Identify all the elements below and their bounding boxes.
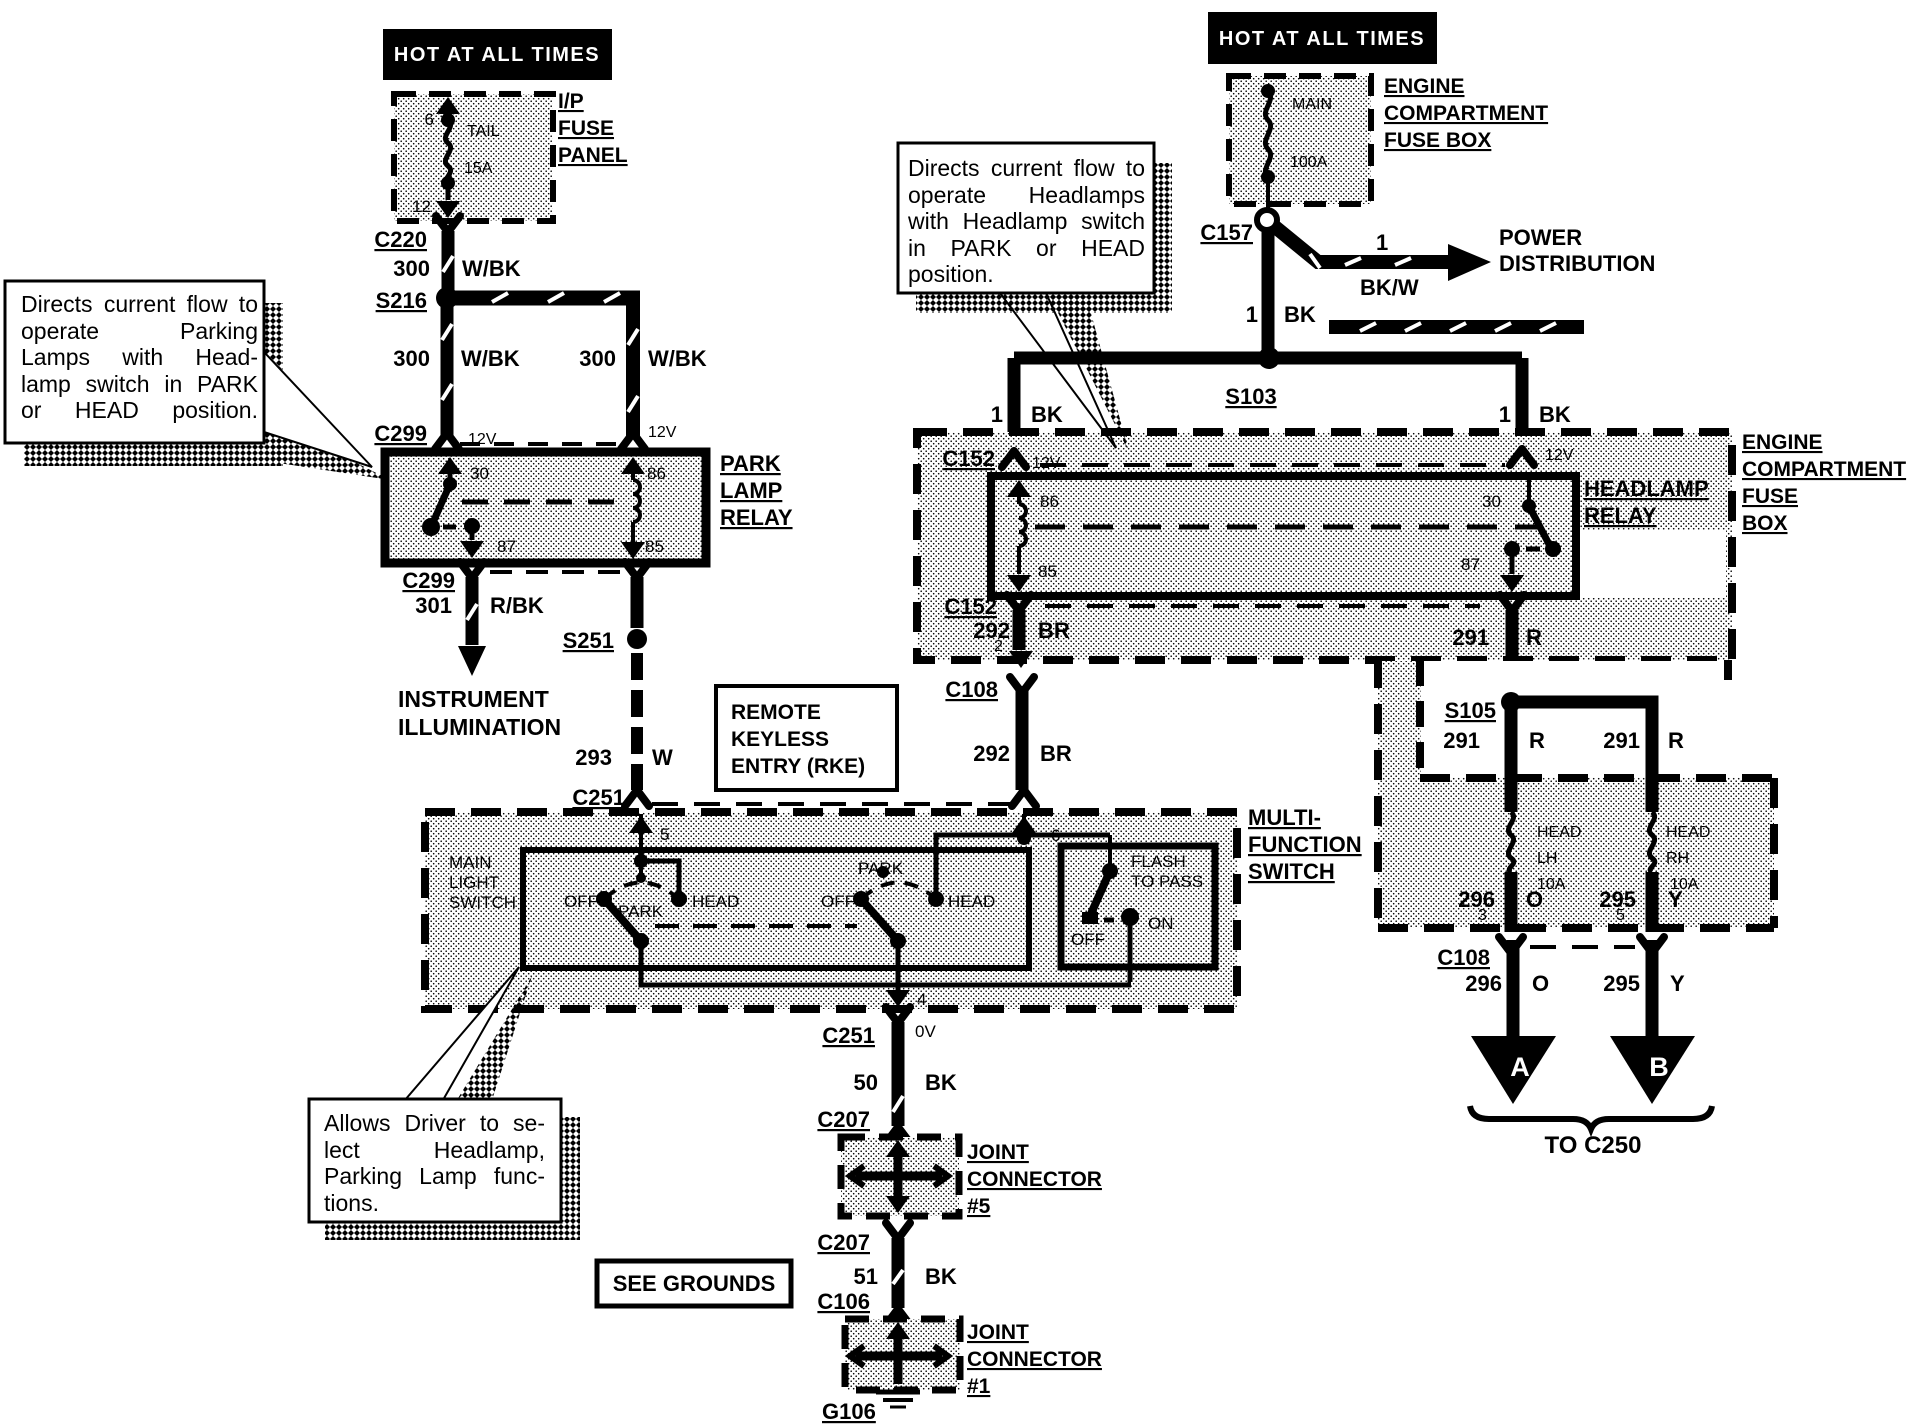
- svg-text:BK: BK: [925, 1070, 957, 1095]
- svg-text:MAIN: MAIN: [449, 853, 492, 872]
- svg-text:HEAD: HEAD: [1666, 824, 1710, 841]
- svg-text:BK/W: BK/W: [1360, 275, 1419, 300]
- svg-text:296: 296: [1465, 971, 1502, 996]
- svg-text:O: O: [1526, 887, 1543, 912]
- svg-text:292: 292: [973, 618, 1010, 643]
- svg-text:HEADLAMP: HEADLAMP: [1584, 476, 1709, 501]
- svg-text:BK: BK: [1284, 302, 1316, 327]
- svg-text:12V: 12V: [648, 424, 677, 441]
- svg-text:C299: C299: [374, 421, 427, 446]
- svg-text:30: 30: [1482, 492, 1501, 511]
- svg-text:RH: RH: [1666, 850, 1689, 867]
- svg-text:COMPARTMENT: COMPARTMENT: [1742, 458, 1906, 481]
- svg-text:INSTRUMENT: INSTRUMENT: [398, 686, 549, 712]
- svg-text:FUNCTION: FUNCTION: [1248, 832, 1362, 857]
- svg-text:C108: C108: [945, 677, 998, 702]
- svg-text:S105: S105: [1445, 698, 1496, 723]
- svg-text:85: 85: [1038, 562, 1057, 581]
- svg-text:1: 1: [1246, 302, 1258, 327]
- svg-text:C207: C207: [817, 1107, 870, 1132]
- svg-text:RELAY: RELAY: [720, 505, 793, 530]
- svg-text:C251: C251: [572, 785, 625, 810]
- svg-text:KEYLESS: KEYLESS: [731, 728, 829, 751]
- svg-text:RELAY: RELAY: [1584, 503, 1657, 528]
- svg-text:W/BK: W/BK: [648, 346, 707, 371]
- svg-text:87: 87: [1461, 555, 1480, 574]
- svg-text:W: W: [652, 745, 673, 770]
- svg-text:C157: C157: [1200, 220, 1253, 245]
- svg-text:JOINT: JOINT: [967, 1141, 1029, 1164]
- svg-text:5: 5: [660, 825, 669, 844]
- svg-text:86: 86: [647, 464, 666, 483]
- svg-text:PARK: PARK: [618, 902, 664, 921]
- svg-text:C220: C220: [374, 227, 427, 252]
- svg-text:1: 1: [1376, 230, 1388, 255]
- svg-text:87: 87: [497, 537, 516, 556]
- svg-text:2: 2: [994, 638, 1003, 655]
- svg-text:292: 292: [973, 741, 1010, 766]
- svg-text:REMOTE: REMOTE: [731, 701, 821, 724]
- svg-text:S251: S251: [563, 628, 614, 653]
- svg-text:291: 291: [1443, 728, 1480, 753]
- svg-text:FUSE: FUSE: [1742, 485, 1798, 508]
- svg-text:FLASH: FLASH: [1131, 852, 1186, 871]
- svg-text:#1: #1: [967, 1375, 991, 1398]
- svg-text:291: 291: [1452, 625, 1489, 650]
- svg-text:LH: LH: [1537, 850, 1557, 867]
- svg-text:BK: BK: [1031, 402, 1063, 427]
- svg-text:C108: C108: [1437, 945, 1490, 970]
- svg-text:C251: C251: [822, 1023, 875, 1048]
- svg-text:FUSE: FUSE: [558, 117, 614, 140]
- svg-text:MAIN: MAIN: [1292, 96, 1332, 113]
- svg-text:12: 12: [412, 197, 431, 216]
- svg-text:SWITCH: SWITCH: [449, 893, 516, 912]
- svg-text:R: R: [1526, 625, 1542, 650]
- svg-text:PANEL: PANEL: [558, 144, 628, 167]
- svg-text:1: 1: [1499, 402, 1511, 427]
- svg-text:86: 86: [1040, 492, 1059, 511]
- svg-text:300: 300: [393, 346, 430, 371]
- svg-text:SEE GROUNDS: SEE GROUNDS: [613, 1271, 776, 1296]
- svg-text:HEAD: HEAD: [1537, 824, 1581, 841]
- svg-text:ENGINE: ENGINE: [1384, 75, 1465, 98]
- svg-text:W/BK: W/BK: [461, 346, 520, 371]
- svg-text:G106: G106: [822, 1399, 876, 1424]
- svg-text:R: R: [1529, 728, 1545, 753]
- svg-text:R/BK: R/BK: [490, 593, 544, 618]
- svg-text:OFF: OFF: [564, 892, 598, 911]
- svg-text:S103: S103: [1225, 384, 1276, 409]
- svg-text:6: 6: [425, 110, 434, 129]
- svg-text:BR: BR: [1040, 741, 1072, 766]
- svg-text:ILLUMINATION: ILLUMINATION: [398, 714, 561, 740]
- svg-text:C152: C152: [942, 446, 995, 471]
- svg-text:3: 3: [1478, 907, 1487, 924]
- svg-text:ENGINE: ENGINE: [1742, 431, 1823, 454]
- svg-text:OFF: OFF: [821, 892, 855, 911]
- svg-text:Y: Y: [1670, 971, 1685, 996]
- svg-text:296: 296: [1458, 887, 1495, 912]
- svg-text:HEAD: HEAD: [948, 892, 995, 911]
- svg-text:PARK: PARK: [720, 451, 781, 476]
- svg-text:B: B: [1649, 1052, 1669, 1082]
- svg-text:15A: 15A: [464, 160, 493, 177]
- svg-text:4: 4: [917, 990, 926, 1009]
- svg-text:ENTRY (RKE): ENTRY (RKE): [731, 755, 865, 778]
- svg-text:TO C250: TO C250: [1545, 1132, 1642, 1159]
- svg-text:CONNECTOR: CONNECTOR: [967, 1348, 1102, 1371]
- svg-text:S216: S216: [376, 288, 427, 313]
- svg-text:LIGHT: LIGHT: [449, 873, 499, 892]
- svg-text:#5: #5: [967, 1195, 991, 1218]
- svg-text:TO PASS: TO PASS: [1131, 872, 1203, 891]
- svg-text:JOINT: JOINT: [967, 1321, 1029, 1344]
- svg-text:ON: ON: [1148, 914, 1174, 933]
- svg-text:HOT AT ALL TIMES: HOT AT ALL TIMES: [1219, 28, 1425, 50]
- svg-text:MULTI-: MULTI-: [1248, 805, 1321, 830]
- svg-text:12V: 12V: [1545, 447, 1574, 464]
- svg-text:CONNECTOR: CONNECTOR: [967, 1168, 1102, 1191]
- svg-text:TAIL: TAIL: [467, 123, 500, 140]
- svg-text:C207: C207: [817, 1230, 870, 1255]
- svg-text:C106: C106: [817, 1289, 870, 1314]
- svg-text:BK: BK: [1539, 402, 1571, 427]
- svg-text:POWER: POWER: [1499, 225, 1582, 250]
- svg-text:50: 50: [854, 1070, 878, 1095]
- svg-text:85: 85: [645, 537, 664, 556]
- svg-text:I/P: I/P: [558, 90, 584, 113]
- svg-text:291: 291: [1603, 728, 1640, 753]
- svg-text:30: 30: [470, 464, 489, 483]
- svg-text:100A: 100A: [1290, 154, 1328, 171]
- svg-text:O: O: [1532, 971, 1549, 996]
- svg-text:PARK: PARK: [858, 859, 904, 878]
- svg-text:295: 295: [1603, 971, 1640, 996]
- svg-text:OFF: OFF: [1071, 930, 1105, 949]
- svg-text:SWITCH: SWITCH: [1248, 859, 1335, 884]
- svg-text:Y: Y: [1668, 887, 1683, 912]
- svg-text:R: R: [1668, 728, 1684, 753]
- svg-text:1: 1: [991, 402, 1003, 427]
- svg-text:BOX: BOX: [1742, 512, 1788, 535]
- svg-text:0V: 0V: [915, 1022, 936, 1041]
- svg-text:COMPARTMENT: COMPARTMENT: [1384, 102, 1548, 125]
- svg-text:BR: BR: [1038, 618, 1070, 643]
- svg-text:12V: 12V: [468, 431, 497, 448]
- svg-text:C299: C299: [402, 568, 455, 593]
- svg-text:C152: C152: [944, 594, 997, 619]
- svg-text:A: A: [1510, 1052, 1530, 1082]
- svg-text:BK: BK: [925, 1264, 957, 1289]
- svg-text:HOT AT ALL TIMES: HOT AT ALL TIMES: [394, 44, 600, 66]
- svg-text:300: 300: [579, 346, 616, 371]
- svg-text:51: 51: [854, 1264, 878, 1289]
- svg-text:293: 293: [575, 745, 612, 770]
- svg-text:W/BK: W/BK: [462, 256, 521, 281]
- svg-text:DISTRIBUTION: DISTRIBUTION: [1499, 251, 1655, 276]
- svg-text:300: 300: [393, 256, 430, 281]
- svg-text:5: 5: [1616, 907, 1625, 924]
- svg-text:301: 301: [415, 593, 452, 618]
- svg-text:LAMP: LAMP: [720, 478, 782, 503]
- svg-text:FUSE BOX: FUSE BOX: [1384, 129, 1491, 152]
- svg-text:HEAD: HEAD: [692, 892, 739, 911]
